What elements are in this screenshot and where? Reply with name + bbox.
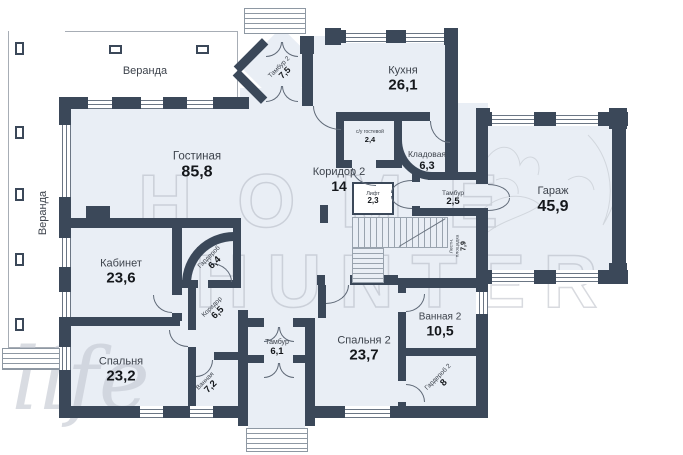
wall-garage-pillar: [609, 263, 627, 284]
window: [406, 30, 444, 43]
window: [59, 292, 71, 317]
veranda-post: [109, 45, 122, 54]
room-label-kitchen: Кухня 26,1: [388, 64, 417, 93]
wall-kitchen-bottom: [336, 112, 430, 121]
room-label-tambour-south: Тамбур 6,1: [265, 339, 289, 357]
plant-sketch: [468, 120, 668, 245]
wall-bathroom2-west: [398, 278, 406, 293]
window: [476, 292, 488, 314]
wall-garage-pillar: [476, 108, 490, 126]
wall-bedroom2-west-stub: [318, 285, 326, 318]
wall-stair-south: [317, 275, 325, 285]
wall-guestwc-bottom: [376, 160, 402, 168]
south-tambour-interior: [248, 406, 305, 430]
window: [345, 406, 390, 418]
wall-kitchen-right: [445, 30, 458, 178]
wall-kitchen-pillar: [325, 28, 341, 45]
veranda-post: [196, 45, 209, 54]
wall-bathroom-north: [188, 352, 196, 360]
window: [59, 238, 71, 267]
wall-tambour-south-top: [293, 318, 305, 327]
wall-tambour-garage-bottom: [412, 208, 478, 216]
wall-bedroom-north: [65, 317, 180, 326]
entrance-steps-south: [246, 428, 308, 452]
wall-hall-stub: [320, 205, 328, 223]
label-veranda-left: Веранда: [37, 191, 49, 235]
staircase-upper-flight: [352, 217, 448, 248]
veranda-post: [15, 188, 24, 201]
room-label-bathroom2: Ванная 2 10,5: [419, 312, 462, 339]
wall-bathroom2-west: [398, 312, 406, 381]
room-label-bedroom: Спальня 23,2: [99, 355, 143, 384]
window: [556, 112, 598, 126]
wall-garage-right: [612, 114, 626, 278]
room-label-bedroom2: Спальня 2 23,7: [337, 334, 390, 363]
window: [88, 97, 112, 109]
wall-tambour-south-top: [248, 318, 264, 327]
window: [140, 406, 163, 418]
window: [556, 270, 598, 284]
room-label-stair-landing: Лестн. площадка 7,9: [450, 230, 469, 262]
wall-bathroom-north: [214, 352, 240, 360]
staircase-lower-flight: [352, 248, 384, 283]
wall-tambour-garage: [412, 172, 420, 182]
wall-tambour-south-mid: [293, 355, 305, 363]
label-veranda-top: Веранда: [123, 65, 167, 77]
floor-plan: HOME HUNTER life: [0, 0, 683, 455]
elevator-area: 2,3: [367, 197, 378, 206]
wall-southblock-top: [398, 278, 488, 288]
wall-wardrobe-east: [233, 228, 241, 288]
room-label-living: Гостиная 85,8: [173, 151, 221, 182]
entrance-steps-top: [244, 8, 306, 34]
room-label-corridor2: Коридор 2 14: [313, 166, 366, 194]
room-label-garage: Гараж 45,9: [537, 185, 568, 215]
wall-door-stub: [86, 206, 110, 218]
window: [141, 97, 163, 109]
room-label-office: Кабинет 23,6: [100, 257, 142, 286]
veranda-post: [15, 42, 24, 55]
wall-bathroom2-wardrobe2-divider: [398, 348, 476, 356]
veranda-steps-left: [2, 348, 60, 370]
room-label-tambour-garage: Тамбур 2,5: [442, 190, 464, 208]
room-label-guest-wc: с/у гостевой 2,4: [356, 130, 384, 144]
wall-living-office-divider: [65, 218, 241, 228]
wall-vestibule-ne-pillar: [300, 36, 314, 54]
wall-garage-pillar: [609, 108, 627, 129]
wall-tambour-south-mid: [248, 355, 264, 363]
window: [59, 347, 71, 370]
room-label-pantry: Кладовая 6,3: [408, 150, 446, 172]
wall-pantry-bottom: [428, 172, 478, 180]
window: [492, 112, 534, 126]
veranda-post: [15, 126, 24, 139]
window: [187, 97, 213, 109]
veranda-post: [15, 253, 24, 266]
window: [59, 125, 71, 197]
wall-tambour-south-east: [305, 318, 315, 426]
window: [346, 30, 386, 43]
wall-kitchen-bottom: [450, 112, 458, 121]
wall-tambour-south-west: [238, 310, 248, 426]
window: [190, 406, 213, 418]
window: [492, 270, 534, 284]
wall-bathroom2-west: [398, 402, 406, 413]
